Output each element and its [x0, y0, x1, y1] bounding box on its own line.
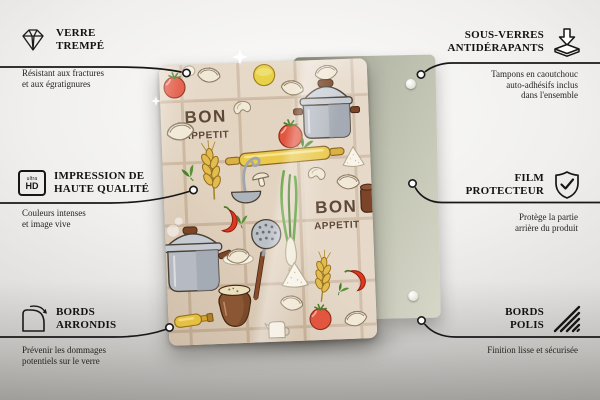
callout-title: IMPRESSION DE HAUTE QUALITÉ: [54, 170, 149, 196]
callout-description: Prévenir les dommages potentiels sur le …: [0, 345, 185, 366]
callout-description: Résistant aux fractures et aux égratignu…: [0, 68, 185, 89]
board-text-appetit-2: appetit: [314, 215, 360, 233]
callout-title: BORDS ARRONDIS: [56, 306, 116, 332]
callout-title: SOUS-VERRES ANTIDÉRAPANTS: [447, 29, 544, 55]
polished-edge-icon: [552, 304, 582, 334]
callout-tempered-glass: VERRE TREMPÉ Résistant aux fractures et …: [0, 27, 185, 89]
anti-slip-pad: [408, 291, 418, 301]
callout-title: FILM PROTECTEUR: [466, 172, 544, 198]
callout-description: Couleurs intenses et image vive: [0, 208, 185, 229]
ultra-hd-icon: ultra HD: [18, 170, 46, 196]
callout-title: BORDS POLIS: [505, 306, 544, 332]
callout-rounded-edges: BORDS ARRONDIS Prévenir les dommages pot…: [0, 304, 185, 366]
ultra-hd-icon-text: HD: [26, 182, 39, 191]
callout-title: VERRE TREMPÉ: [56, 27, 104, 53]
callout-description: Tampons en caoutchouc auto-adhésifs incl…: [405, 69, 600, 101]
callout-protective-film: FILM PROTECTEUR Protège la partie arrièr…: [405, 170, 600, 233]
callout-description: Protège la partie arrière du produit: [405, 212, 600, 233]
shield-check-icon: [552, 170, 582, 200]
callout-print-quality: ultra HD IMPRESSION DE HAUTE QUALITÉ Cou…: [0, 170, 185, 229]
callout-description: Finition lisse et sécurisée: [405, 345, 600, 356]
rounded-corner-icon: [18, 304, 48, 334]
anti-slip-pad-icon: [552, 27, 582, 57]
board-design: BON appetit: [159, 58, 378, 346]
diamond-icon: [18, 27, 48, 53]
callout-anti-slip-pads: SOUS-VERRES ANTIDÉRAPANTS Tampons en cao…: [405, 27, 600, 101]
product-feature-infographic: BON appetit: [0, 0, 600, 400]
callout-polished-edges: BORDS POLIS Finition lisse et sécurisée: [405, 304, 600, 356]
glass-board: BON appetit: [159, 58, 378, 346]
